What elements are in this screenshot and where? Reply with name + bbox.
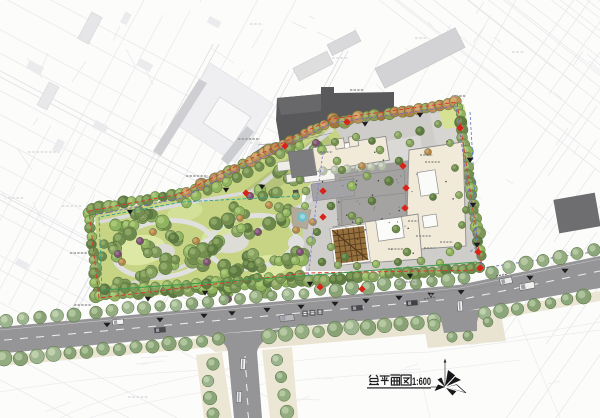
svg-text:1:600: 1:600 xyxy=(412,376,431,388)
